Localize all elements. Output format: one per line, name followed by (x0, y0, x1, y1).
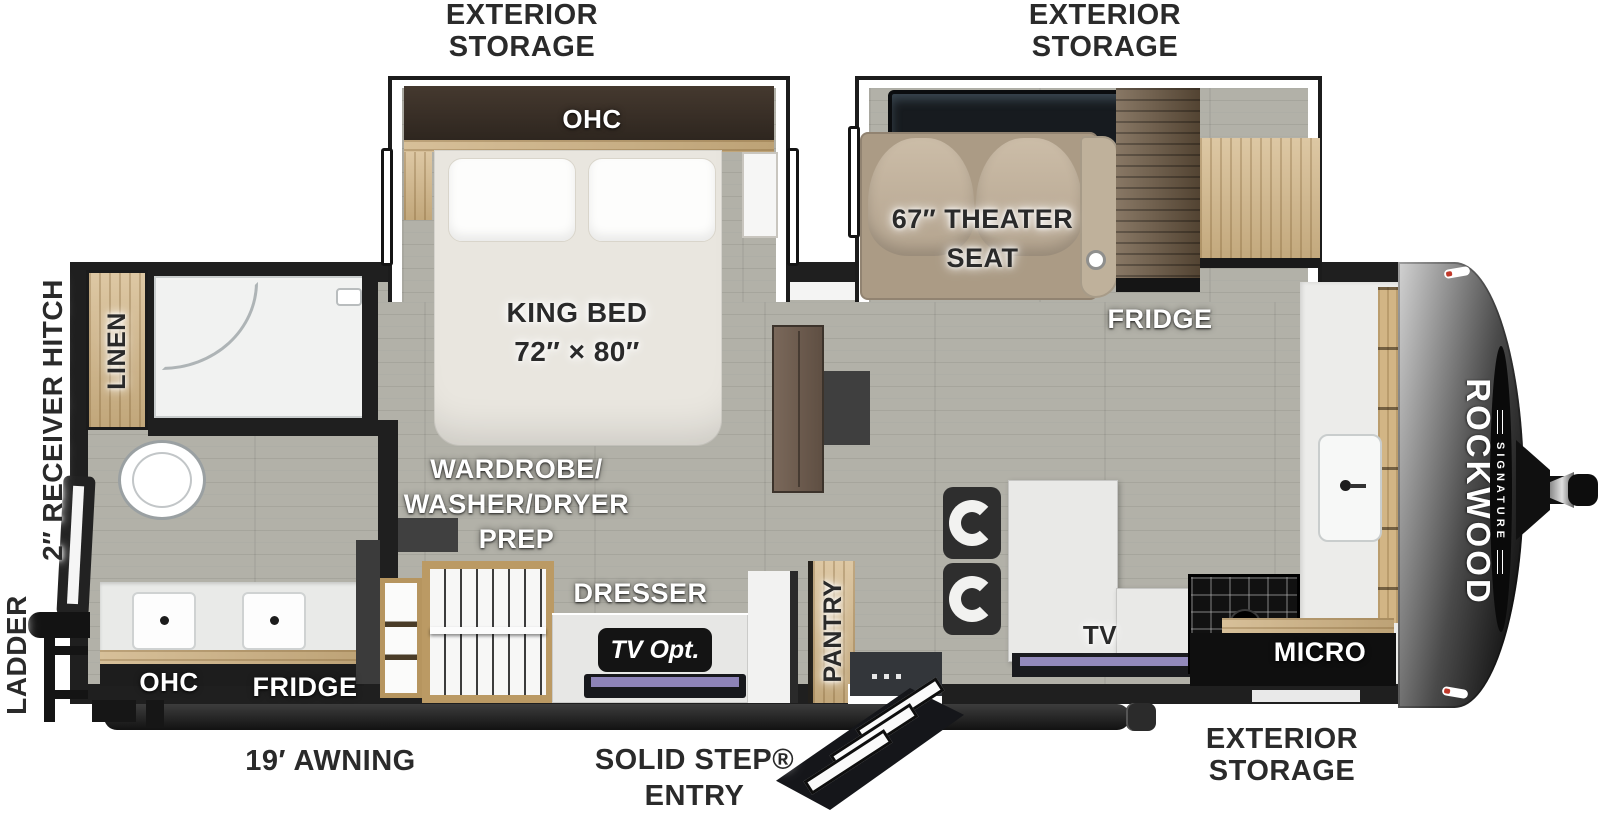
bath-ohc-label: OHC (130, 667, 208, 698)
living-wood-cabinet (1200, 138, 1320, 266)
entertainment-wardrobe (772, 325, 824, 493)
wardrobe-prep-label: WARDROBE/ WASHER/DRYER PREP (394, 452, 639, 557)
theater-seat-label: 67″ THEATER SEAT (855, 200, 1110, 278)
brand-series-label: SIGNATURE (1494, 442, 1506, 542)
receiver-tube (28, 612, 90, 638)
rear-ladder-rung-bottom (44, 690, 88, 699)
bath-shelf-cabinet (380, 578, 422, 698)
island-tv-shelf (1012, 653, 1212, 677)
entry-landing-dots (872, 674, 906, 679)
ladder-label: LADDER (0, 580, 30, 730)
bottom-wall-white-seg (1252, 690, 1360, 702)
storage-top-left-label: EXTERIOR STORAGE (402, 0, 642, 64)
kitchen-faucet-stub (1350, 484, 1366, 488)
tv-option-badge: TV Opt. (598, 628, 712, 672)
brand-series-wrap: SIGNATURE (1491, 407, 1509, 577)
rear-bumper-step (92, 700, 136, 722)
bedroom-slide-window-right (787, 148, 799, 266)
pantry-label: PANTRY (819, 565, 847, 697)
pillow-left (448, 158, 576, 242)
awning-end-cap (1126, 703, 1156, 731)
wardrobe-cabinet (422, 561, 554, 703)
storage-top-right-label: EXTERIOR STORAGE (985, 0, 1225, 64)
tv-option-label: TV Opt. (611, 636, 700, 665)
living-fridge-label: FRIDGE (1085, 304, 1235, 336)
dresser-label: DRESSER (563, 578, 718, 610)
bedroom-tv (584, 674, 746, 698)
bedroom-slide-window-left (381, 148, 393, 266)
awning-bar (104, 704, 1130, 730)
entertainment-wardrobe-seam (798, 331, 800, 487)
island-tv-label: TV (1062, 620, 1138, 651)
bath-divider-cabinet (356, 540, 380, 684)
bath-wall-right-of-shower (362, 270, 378, 436)
micro-label: MICRO (1246, 637, 1394, 669)
counter-wood-strip (1222, 618, 1394, 633)
storage-bottom-right-label: EXTERIOR STORAGE (1162, 724, 1402, 788)
floorplan-canvas: OHC KING BED 72″ × 80″ 67″ THEATER SEAT … (0, 0, 1600, 817)
vanity-faucet-left (160, 616, 169, 625)
bedroom-ohc-label: OHC (552, 104, 632, 135)
bath-shelf-lines (385, 583, 417, 693)
stabilizer-jack (146, 700, 164, 728)
entertainment-chase (824, 371, 870, 445)
nightstand-left (404, 152, 432, 220)
shower-head (336, 288, 362, 306)
living-fridge-cabinet-base (1116, 278, 1200, 292)
entry-label: SOLID STEP® ENTRY (572, 742, 817, 815)
toilet-seat (132, 452, 192, 508)
series-rule-right (1497, 550, 1503, 574)
rear-ladder-rung-top (44, 646, 88, 655)
bedroom-tv-screen (591, 677, 739, 687)
hitch-coupler-knob (1568, 474, 1598, 506)
living-fridge-cabinet (1116, 88, 1200, 286)
pillow-right (588, 158, 716, 242)
stool-2-cushion (949, 576, 995, 622)
living-wood-cabinet-base (1200, 258, 1320, 268)
vanity-faucet-right (270, 616, 279, 625)
king-bed-label: KING BED 72″ × 80″ (462, 293, 692, 371)
prep-closet (748, 571, 798, 703)
marker-light-top-red (1446, 271, 1453, 277)
wardrobe-rod (430, 627, 546, 634)
marker-light-bottom-red (1444, 688, 1451, 694)
stool-1-cushion (949, 500, 995, 546)
bath-mirror-glass (67, 486, 84, 604)
bath-fridge-label: FRIDGE (232, 672, 378, 704)
island-tv-screen (1020, 657, 1204, 666)
top-wall-front (1318, 262, 1410, 282)
interior-wall-face-mid (790, 282, 856, 300)
receiver-hitch-label: 2″ RECEIVER HITCH (36, 260, 68, 580)
series-rule-left (1497, 410, 1503, 434)
nightstand-right (742, 152, 778, 238)
bath-wall-below-shower (148, 420, 372, 436)
linen-label: LINEN (103, 296, 131, 406)
awning-label: 19′ AWNING (228, 744, 433, 778)
